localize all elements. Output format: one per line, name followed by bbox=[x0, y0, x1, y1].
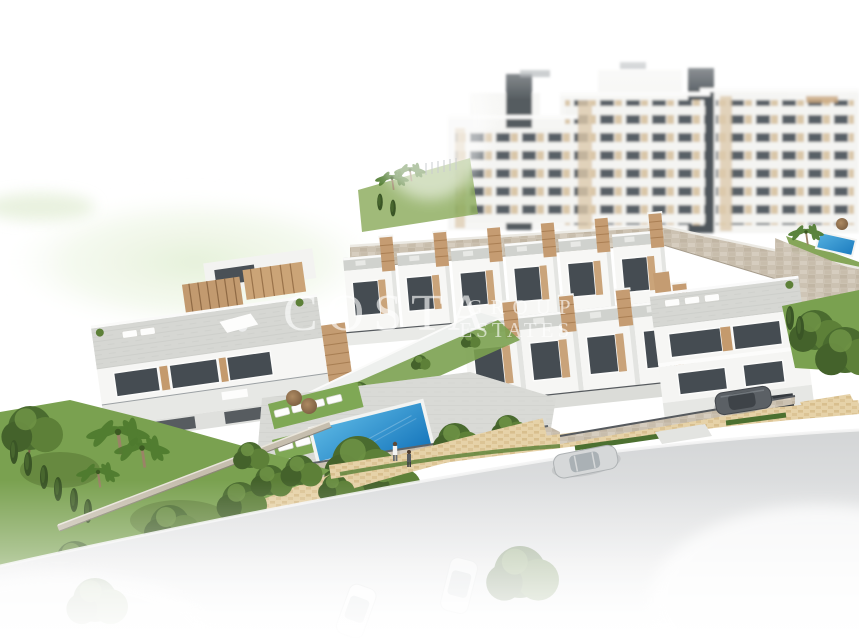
cypress-tree bbox=[10, 440, 18, 464]
sun-lounger bbox=[664, 298, 680, 307]
sun-lounger bbox=[704, 293, 720, 302]
cypress-tree bbox=[390, 200, 396, 217]
parasol bbox=[286, 390, 302, 406]
architectural-render: COSTA GROUP ESTATES bbox=[0, 0, 859, 638]
cypress-tree bbox=[796, 316, 804, 340]
cypress-tree bbox=[24, 452, 32, 476]
cypress-tree bbox=[786, 306, 794, 330]
parasol bbox=[301, 398, 317, 414]
sun-lounger bbox=[684, 296, 700, 305]
parasol bbox=[836, 218, 848, 230]
cypress-tree bbox=[377, 194, 383, 211]
